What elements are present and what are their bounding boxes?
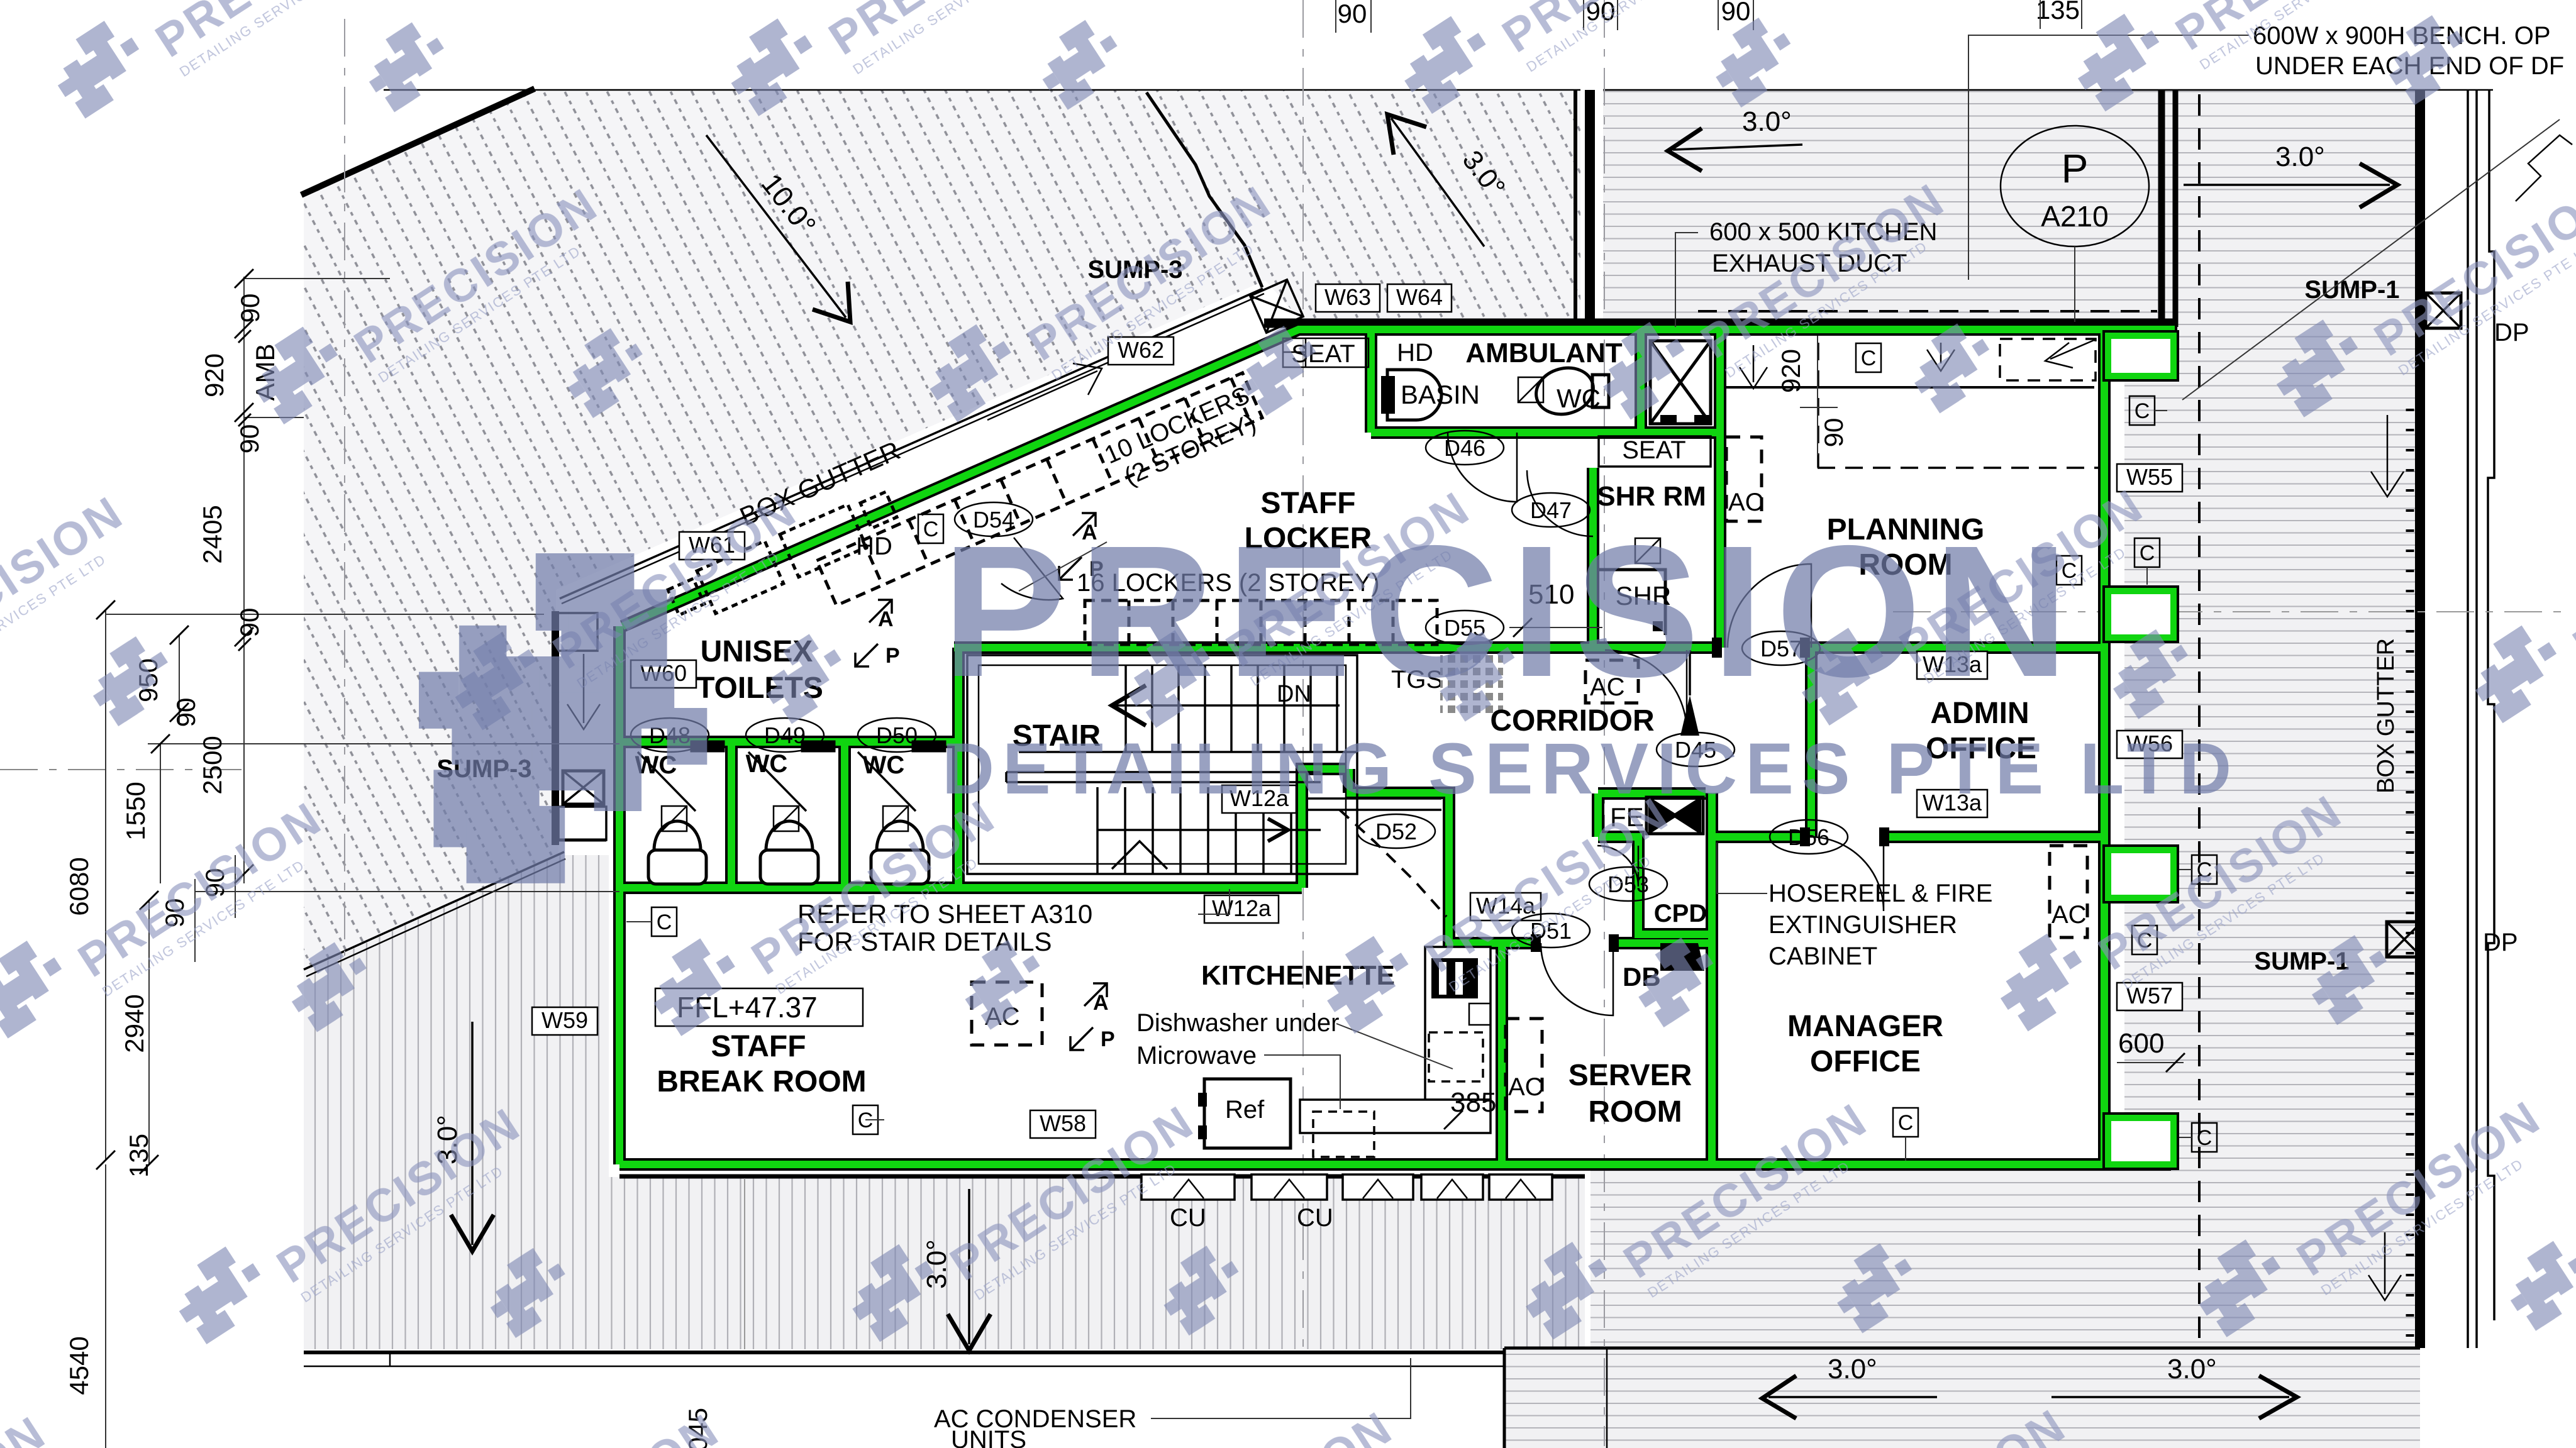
svg-text:DETAILING SERVICES PTE LTD: DETAILING SERVICES PTE LTD: [942, 729, 2240, 809]
svg-text:PRECISION: PRECISION: [942, 507, 2080, 716]
